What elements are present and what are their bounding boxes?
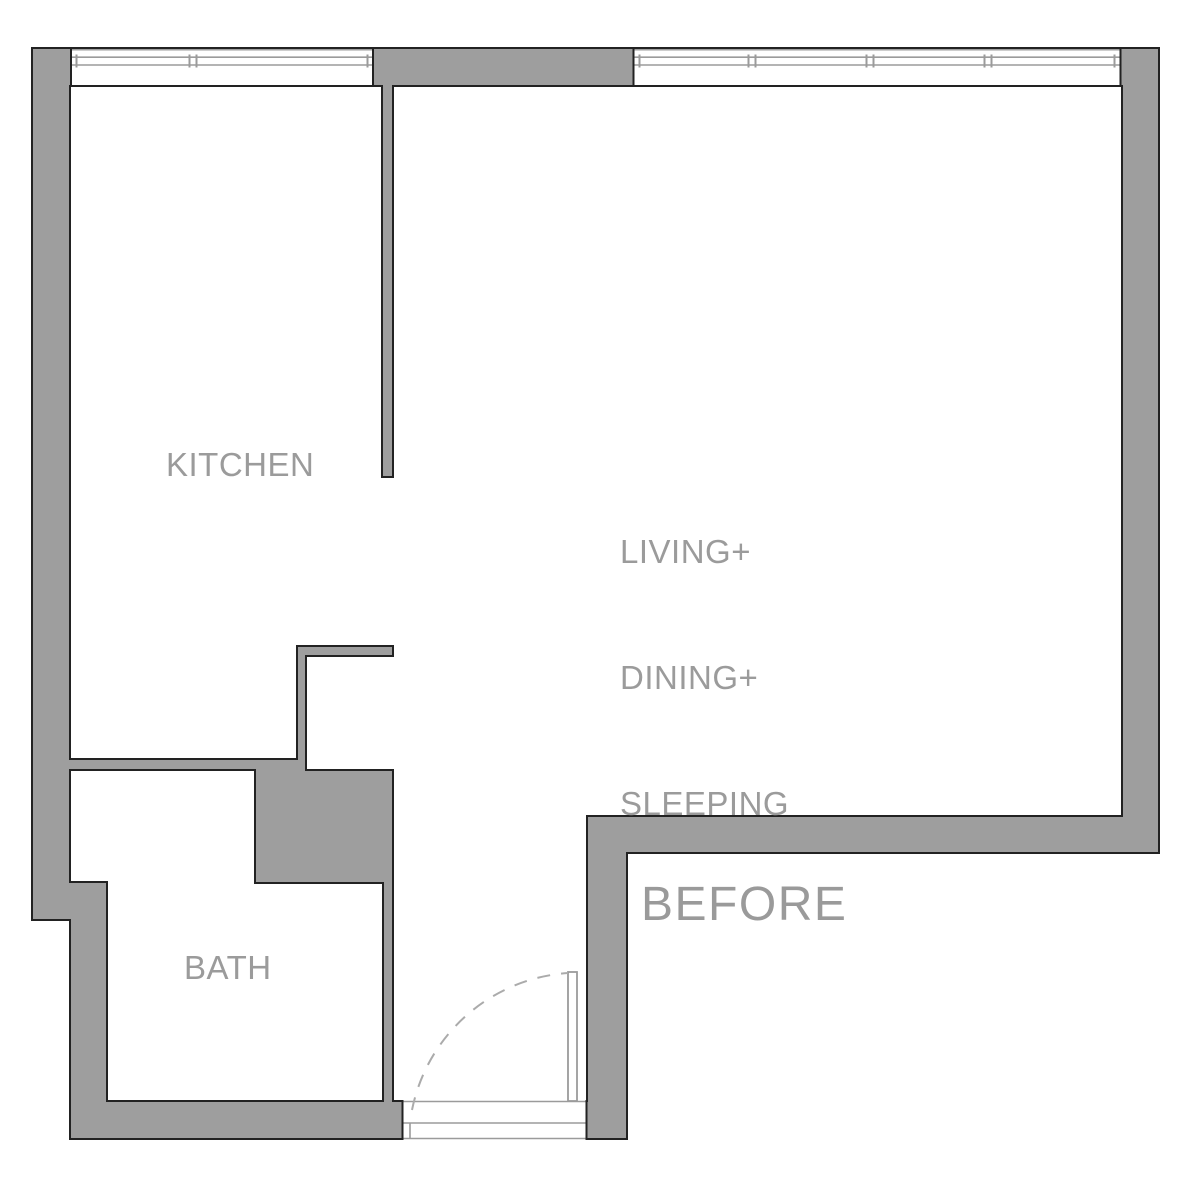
living-window-icon (634, 49, 1121, 86)
room-label-living-line3: SLEEPING (620, 783, 789, 825)
room-label-kitchen: KITCHEN (166, 444, 314, 486)
room-label-living: LIVING+ DINING+ SLEEPING (620, 447, 789, 909)
kitchen-window-icon (71, 49, 373, 86)
entry-door-threshold (404, 1099, 586, 1141)
door-swing-arc (412, 973, 568, 1110)
kitchen-window-glass (72, 51, 372, 86)
living-window-glass (635, 51, 1120, 86)
stage-label-before: BEFORE (641, 881, 847, 929)
entry-door-leaf (568, 972, 577, 1101)
room-label-living-line2: DINING+ (620, 657, 789, 699)
room-label-living-line1: LIVING+ (620, 531, 789, 573)
floor-plan-canvas: KITCHEN LIVING+ DINING+ SLEEPING BATH BE… (0, 0, 1200, 1200)
room-label-bath: BATH (184, 947, 272, 989)
floor-plan-drawing (0, 0, 1200, 1200)
entry-door (403, 972, 587, 1141)
